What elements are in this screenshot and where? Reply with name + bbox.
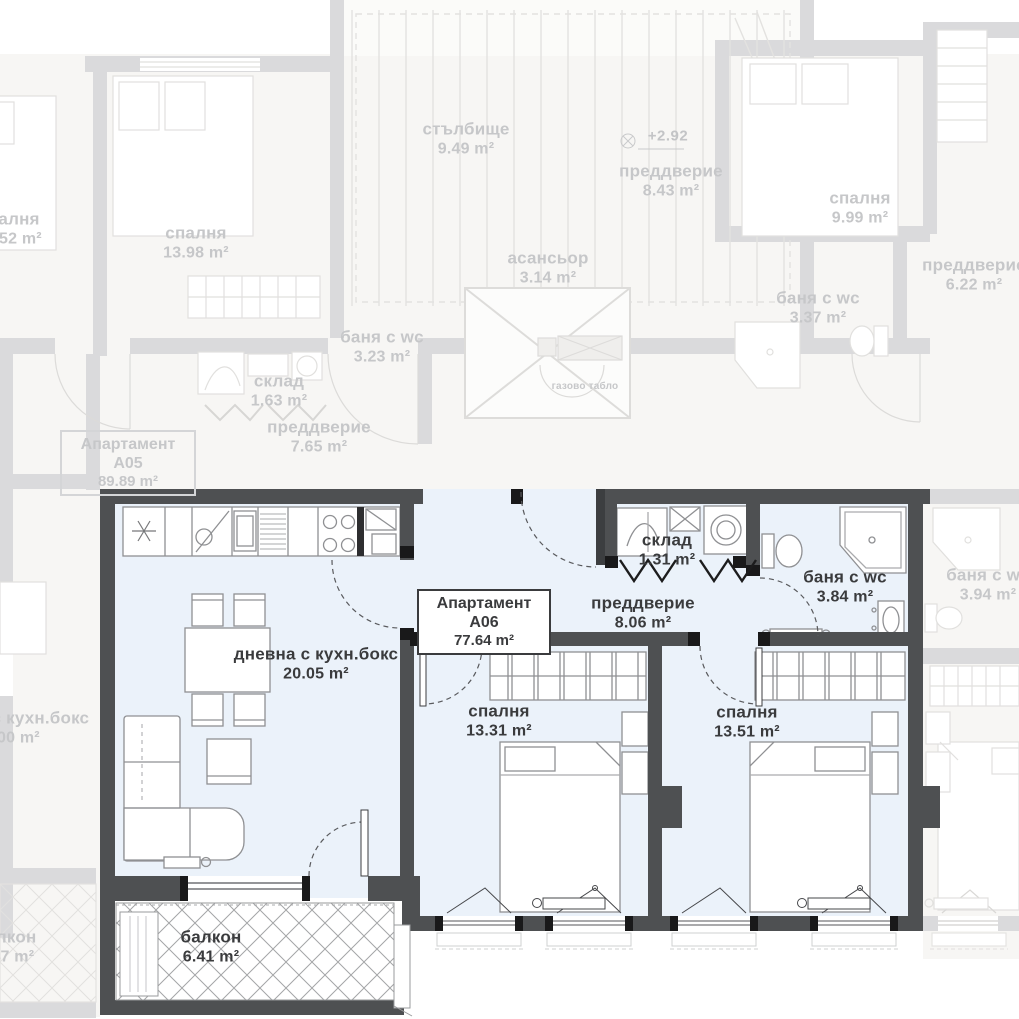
room-label-stairs: стълбище 9.49 m² (422, 119, 509, 160)
room-label-bath-a05: баня с wc 3.23 m² (340, 327, 424, 368)
gas-panel-label: газово табло (552, 381, 619, 393)
wardrobe-icon-bedroom1 (490, 652, 646, 700)
room-label-bathroom: баня с wc 3.84 m² (803, 567, 887, 608)
room-label-bedroom1: спалня 13.31 m² (466, 701, 532, 742)
wardrobe-icon-13-98 (188, 276, 320, 318)
coffee-table (207, 739, 251, 784)
room-label-bedroom2: спалня 13.51 m² (714, 702, 780, 743)
room-label-hallway: преддверие 8.06 m² (591, 593, 695, 634)
toilet-icon (762, 534, 802, 568)
room-label-elevator: асансьор 3.14 m² (507, 248, 588, 289)
room-label-bedroom-top-left: спалня 13.98 m² (163, 223, 229, 264)
room-label-bath-top-right: баня с wc 3.37 m² (776, 288, 860, 329)
room-label-living: дневна с кухн.бокс 20.05 m² (234, 644, 398, 685)
wardrobe-icon-top-right (937, 30, 987, 142)
kitchen-counter (123, 507, 400, 556)
wardrobe-icon-right (930, 666, 1019, 706)
floor-plan: стълбище 9.49 m² +2.92 преддверие 8.43 m… (0, 0, 1019, 1019)
balcony-door-leaf (361, 810, 368, 876)
level-mark-label: +2.92 (648, 128, 688, 145)
wardrobe-icon-bedroom2 (755, 652, 905, 700)
window-top-left (140, 58, 260, 71)
room-label-bedroom-top-right: спалня 9.99 m² (829, 188, 890, 229)
room-label-balcony: балкон 6.41 m² (181, 927, 242, 968)
room-label-storage-a05: склад 1.63 m² (251, 371, 308, 412)
room-label-hall-right: преддверие 6.22 m² (922, 255, 1019, 296)
room-label-hall-a05: преддверие 7.65 m² (267, 417, 371, 458)
room-label-storage: склад 1.31 m² (639, 530, 696, 571)
room-label-living-far-left: дневна с кухн.бокс 20.00 m² (0, 708, 89, 749)
apartment-a05-label-box: Апартамент А05 89.89 m² (60, 430, 196, 496)
room-label-bedroom-far-left: спалня 13.52 m² (0, 209, 42, 250)
table-icon-a05 (0, 582, 46, 654)
apartment-a06-label-box: Апартамент А06 77.64 m² (417, 589, 551, 655)
sink-icon (234, 511, 256, 551)
planter-icon (120, 912, 158, 996)
room-label-balcony-far-left: балкон 6.47 m² (0, 927, 36, 968)
bed-icon-13-98 (113, 76, 253, 236)
bedroom1-door-leaf (420, 648, 426, 706)
room-label-bath-right: баня с wc 3.94 m² (946, 565, 1019, 606)
room-label-hall-top: преддверие 8.43 m² (619, 161, 723, 202)
gas-panel-icon (538, 336, 622, 360)
entry-door-leaf (596, 489, 605, 565)
balcony-area (116, 903, 412, 1016)
bedroom2-door-leaf (756, 648, 762, 706)
washing-machine-icon (704, 506, 748, 554)
